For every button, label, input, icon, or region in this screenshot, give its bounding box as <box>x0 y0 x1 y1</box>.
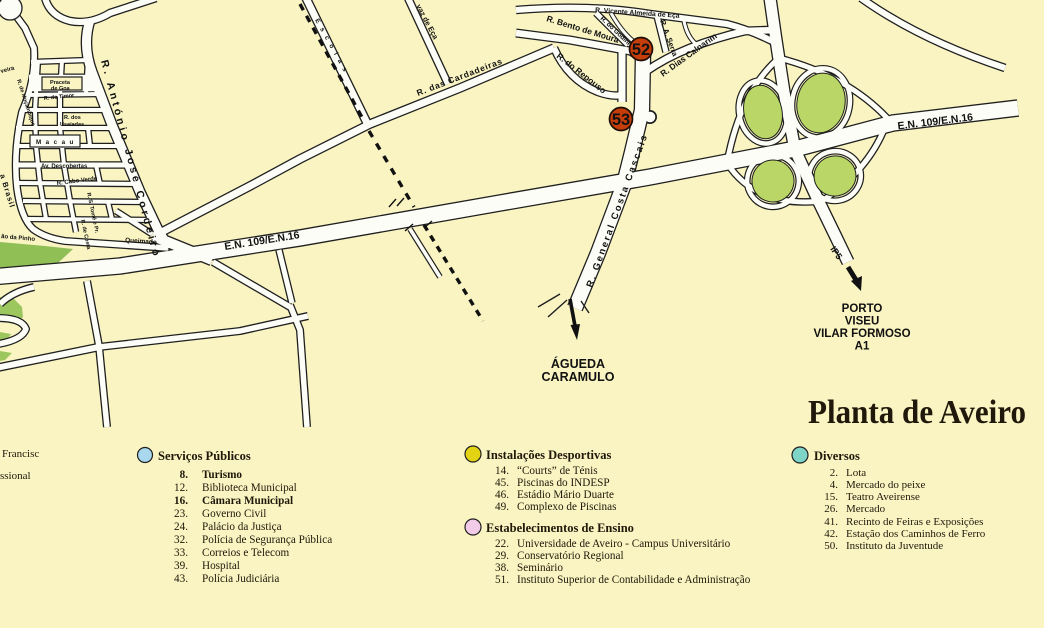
svg-text:41.: 41. <box>824 516 838 528</box>
svg-text:46.: 46. <box>495 489 509 501</box>
svg-text:Biblioteca Municipal: Biblioteca Municipal <box>202 482 297 494</box>
svg-text:Câmara Municipal: Câmara Municipal <box>202 495 293 507</box>
svg-text:Diversos: Diversos <box>814 449 860 463</box>
svg-text:32.: 32. <box>174 534 188 546</box>
svg-text:de Goa: de Goa <box>51 86 71 92</box>
svg-text:“Courts” de Ténis: “Courts” de Ténis <box>517 465 598 477</box>
svg-text:Complexo de Piscinas: Complexo de Piscinas <box>517 501 616 513</box>
svg-text:45.: 45. <box>495 477 509 489</box>
svg-text:Mercado: Mercado <box>846 503 886 515</box>
svg-text:Hospital: Hospital <box>202 560 240 572</box>
svg-text:26.: 26. <box>824 503 838 515</box>
svg-text:Instituto Superior de Contabil: Instituto Superior de Contabilidade e Ad… <box>517 574 751 586</box>
svg-text:14.: 14. <box>495 465 509 477</box>
svg-text:Turismo: Turismo <box>202 469 242 481</box>
svg-text:33.: 33. <box>174 547 188 559</box>
svg-text:R. dos: R. dos <box>64 115 81 121</box>
svg-text:16.: 16. <box>174 495 188 507</box>
svg-text:Seminário: Seminário <box>517 562 563 574</box>
svg-text:29.: 29. <box>495 550 509 562</box>
svg-text:CARAMULO: CARAMULO <box>542 370 615 384</box>
svg-text:VILAR FORMOSO: VILAR FORMOSO <box>813 328 910 340</box>
svg-text:Lota: Lota <box>846 467 866 479</box>
svg-text:Estádio Mário Duarte: Estádio Mário Duarte <box>517 489 614 501</box>
svg-text:Estação dos Caminhos de Ferro: Estação dos Caminhos de Ferro <box>846 528 986 540</box>
svg-text:A1: A1 <box>855 341 870 353</box>
svg-text:Conservatório Regional: Conservatório Regional <box>517 550 624 562</box>
svg-text:4.: 4. <box>830 479 839 491</box>
svg-text:38.: 38. <box>495 562 509 574</box>
svg-text:53: 53 <box>612 111 630 129</box>
svg-text:Polícia de Segurança Pública: Polícia de Segurança Pública <box>202 534 332 546</box>
svg-text:Teatro Aveirense: Teatro Aveirense <box>846 491 920 503</box>
svg-text:Piscinas do INDESP: Piscinas do INDESP <box>517 477 610 489</box>
svg-text:50.: 50. <box>824 540 838 552</box>
svg-text:51.: 51. <box>495 574 509 586</box>
svg-text:Serviços Públicos: Serviços Públicos <box>158 449 251 463</box>
svg-text:Universidade de Aveiro - Campu: Universidade de Aveiro - Campus Universi… <box>517 538 731 550</box>
svg-text:Estabelecimentos de Ensino: Estabelecimentos de Ensino <box>486 521 634 535</box>
svg-text:39.: 39. <box>174 560 188 572</box>
svg-text:Usaiadas: Usaiadas <box>60 122 84 128</box>
svg-text:ssional: ssional <box>0 470 31 482</box>
svg-text:2.: 2. <box>830 467 839 479</box>
svg-text:Polícia Judiciária: Polícia Judiciária <box>202 573 279 585</box>
svg-text:43.: 43. <box>174 573 188 585</box>
svg-text:52: 52 <box>632 41 650 59</box>
svg-text:24.: 24. <box>174 521 188 533</box>
svg-text:VISEU: VISEU <box>845 316 880 328</box>
svg-text:8.: 8. <box>180 469 189 481</box>
svg-text:42.: 42. <box>824 528 838 540</box>
svg-text:Planta de Aveiro: Planta de Aveiro <box>808 394 1026 431</box>
svg-text:M a c a u: M a c a u <box>36 139 75 146</box>
svg-text:Palácio da Justiça: Palácio da Justiça <box>202 521 282 533</box>
svg-text:Av. Descobertas: Av. Descobertas <box>41 164 88 170</box>
svg-text:15.: 15. <box>824 491 838 503</box>
svg-text:49.: 49. <box>495 501 509 513</box>
svg-text:12.: 12. <box>174 482 188 494</box>
svg-text:Mercado do peixe: Mercado do peixe <box>846 479 926 491</box>
svg-text:PORTO: PORTO <box>842 303 883 315</box>
svg-text:Francisc: Francisc <box>2 448 39 460</box>
svg-text:Correios e Telecom: Correios e Telecom <box>202 547 290 559</box>
svg-text:Governo Civil: Governo Civil <box>202 508 266 520</box>
svg-text:Recinto de Feiras e Exposições: Recinto de Feiras e Exposições <box>846 516 983 528</box>
svg-text:22.: 22. <box>495 538 509 550</box>
svg-text:23.: 23. <box>174 508 188 520</box>
svg-text:Instalações Desportivas: Instalações Desportivas <box>486 448 611 462</box>
svg-text:Instituto da Juventude: Instituto da Juventude <box>846 540 943 552</box>
svg-text:ÁGUEDA: ÁGUEDA <box>551 356 605 371</box>
